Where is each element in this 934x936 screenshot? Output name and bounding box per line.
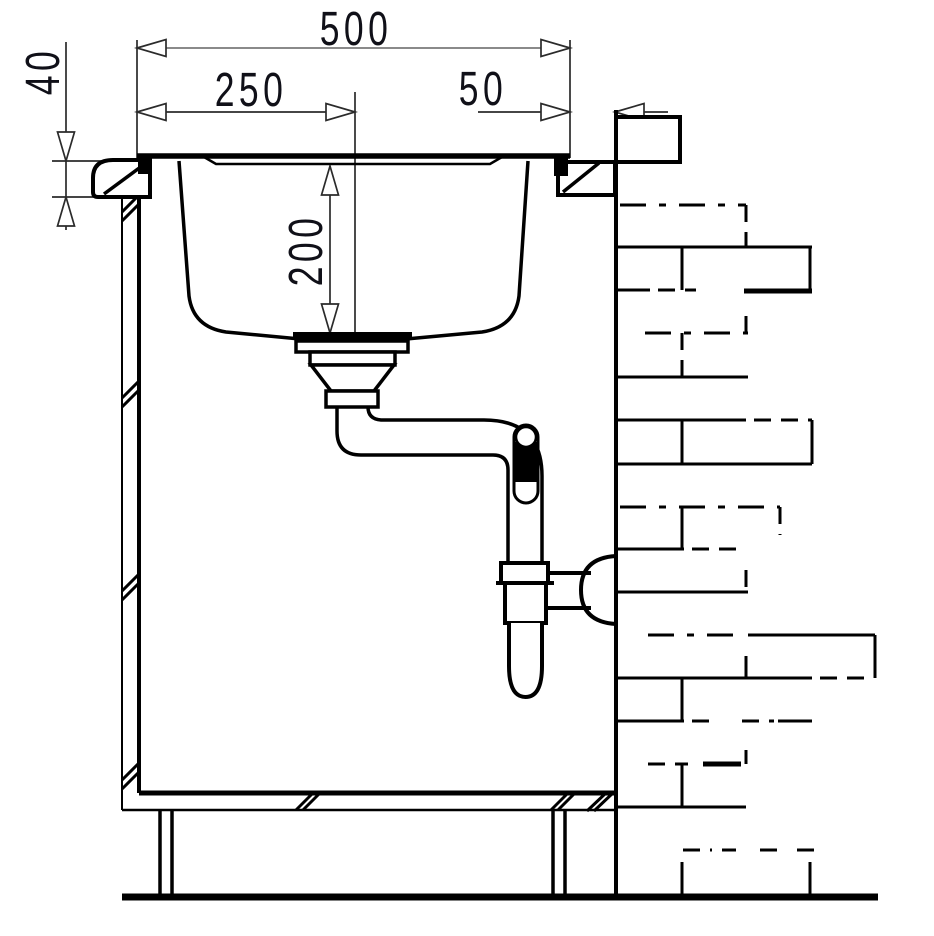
panel-hatch-marks: [122, 195, 139, 789]
dimension-label-counter-thickness: 40: [20, 38, 68, 103]
sink-section-linework: [0, 0, 934, 936]
pipe-seal-top-ring: [516, 427, 536, 447]
arrowhead-up-icon: [58, 197, 75, 226]
sink-bowl: [137, 154, 570, 339]
arrowhead-right-icon: [541, 104, 570, 121]
technical-drawing-canvas: 500 250 50 40 200: [0, 0, 934, 936]
dimension-value-50: 50: [459, 66, 507, 114]
arrowhead-left-icon: [137, 40, 166, 57]
tailpiece-nut: [326, 391, 378, 407]
arrowhead-right-icon: [541, 40, 570, 57]
wall-top-block: [616, 117, 680, 162]
brick-hatching: [618, 205, 875, 897]
dimension-value-250: 250: [215, 67, 288, 115]
arrowhead-right-icon: [326, 104, 355, 121]
arrowhead-down-icon: [58, 132, 75, 161]
arrowhead-left-icon: [137, 104, 166, 121]
dimension-value-200: 200: [283, 214, 331, 287]
trap-nut: [501, 563, 548, 583]
drain-body-plate: [310, 352, 395, 365]
dimension-label-total-width: 500: [307, 6, 405, 54]
dimension-label-bowl-depth: 200: [283, 201, 331, 299]
dimension-value-40: 40: [20, 47, 68, 95]
brick-thick-lines: [703, 291, 812, 764]
drain-funnel: [311, 365, 394, 391]
cabinet-legs: [160, 810, 565, 897]
dimension-value-500: 500: [320, 6, 393, 54]
bowl-right-wall: [406, 161, 528, 339]
bottle-trap: [496, 563, 591, 697]
wall-section: [616, 110, 875, 897]
pipe-inner-wall: [337, 407, 508, 563]
trap-cup: [509, 623, 542, 697]
drain-assembly: [296, 341, 408, 407]
wall-outlet-bell: [581, 556, 616, 624]
waste-pipe: [337, 407, 542, 563]
arrowhead-up-icon: [322, 166, 339, 195]
arrowhead-down-icon: [322, 304, 339, 333]
trap-body: [505, 583, 546, 623]
dimension-label-drain-offset: 250: [202, 67, 300, 115]
dimension-label-wall-gap: 50: [450, 66, 515, 114]
